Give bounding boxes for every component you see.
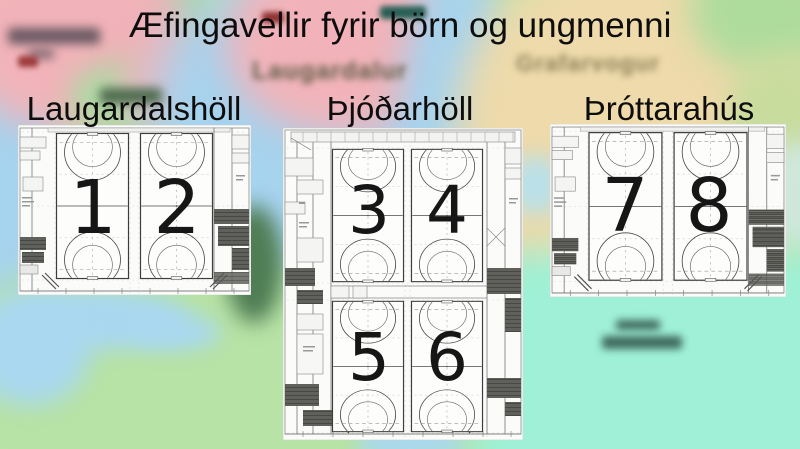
- hall-title-laugardalsholl: Laugardalshöll: [27, 90, 242, 128]
- floorplan-laugardalsholl: [18, 125, 251, 295]
- court-number-7: 7: [601, 169, 648, 243]
- map-marker: [18, 56, 38, 67]
- floorplan-throttarahus: [550, 124, 786, 297]
- map-lake: [130, 315, 220, 350]
- court-number-2: 2: [153, 171, 200, 245]
- court-number-4: 4: [426, 178, 468, 244]
- court-number-5: 5: [348, 325, 390, 391]
- hall-title-throttarahus: Þróttarahús: [584, 90, 755, 128]
- court-number-1: 1: [69, 171, 116, 245]
- court-number-3: 3: [348, 178, 390, 244]
- page-title: Æfingavellir fyrir börn og ungmenni: [0, 6, 800, 46]
- court-number-6: 6: [426, 325, 468, 391]
- map-blurred-label: [616, 320, 660, 330]
- map-blurred-label: [602, 336, 682, 349]
- slide: Laugardalur Grafarvogur: [0, 0, 800, 449]
- hall-title-thjodarholl: Þjóðarhöll: [327, 90, 474, 128]
- map-label-laugardalur: Laugardalur: [252, 57, 407, 86]
- map-label-grafarvogur: Grafarvogur: [516, 50, 660, 77]
- floorplan-thjodarholl: [283, 128, 523, 440]
- court-number-8: 8: [685, 169, 732, 243]
